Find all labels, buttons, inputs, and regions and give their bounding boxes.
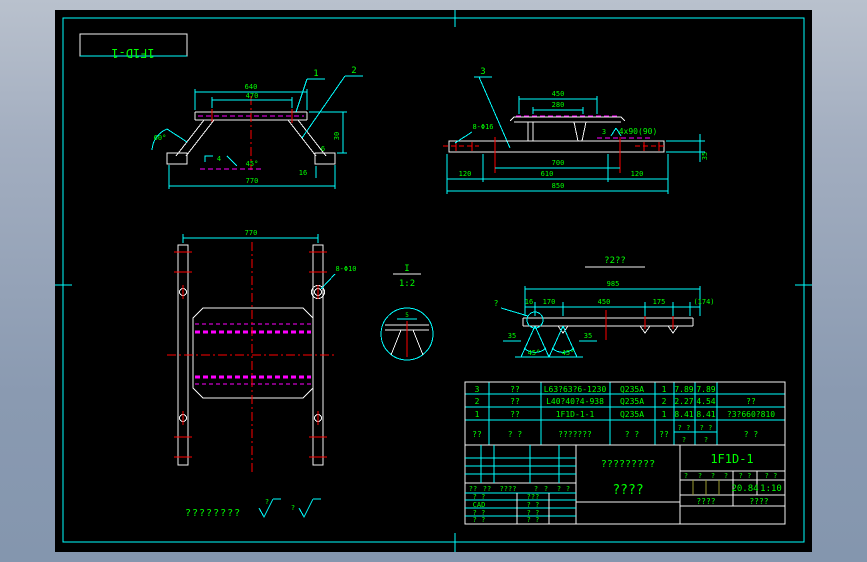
cell-remark: ?? xyxy=(746,397,756,406)
drawing-number-stamp: 1F1D-1 xyxy=(80,34,187,60)
drawing-name-line1: ????????? xyxy=(601,459,655,470)
detail-ref: ? xyxy=(494,299,499,308)
rev-h2: ?? xyxy=(483,485,491,493)
hole-note: 8-Φ10 xyxy=(335,265,356,273)
cell-name: L40?40?4-938 xyxy=(546,397,604,406)
header-unit-sub: ? xyxy=(682,436,686,444)
dim-left: 120 xyxy=(459,170,472,178)
scale-value: 1:10 xyxy=(760,484,782,494)
rev-h5: ? xyxy=(544,485,548,493)
dim-angle-left: 45° xyxy=(528,349,541,357)
table-row: 2 ?? L40?40?4-938 Q235A 2 2.27 4.54 ?? xyxy=(475,397,756,406)
header-unit-weight: ? ? xyxy=(678,424,691,432)
rev-h6: ? xyxy=(557,485,561,493)
header-remark: ? ? xyxy=(744,430,759,439)
sig-row-label: ??? xyxy=(527,493,540,501)
roughness-value: ? xyxy=(291,504,295,512)
cell-remark: ?3?660?810 xyxy=(727,410,775,419)
development-title: ?2?? xyxy=(604,256,626,266)
mark-3: ? xyxy=(711,472,715,480)
cell-unit-weight: 7.89 xyxy=(674,385,693,394)
mark-1: ? xyxy=(684,472,688,480)
dim-total: 985 xyxy=(607,280,620,288)
dim-bottom: 770 xyxy=(246,177,259,185)
dim-mid: 610 xyxy=(541,170,554,178)
detail-dim: 5 xyxy=(405,312,409,319)
header-qty: ?? xyxy=(659,430,669,439)
dim-seg2: 170 xyxy=(543,298,556,306)
dim-total: 850 xyxy=(552,182,565,190)
cell-qty: 1 xyxy=(662,410,667,419)
roughness-symbol: ? xyxy=(259,498,281,517)
sig-row-label: ? ? xyxy=(473,516,486,524)
sig-row-label: ? ? xyxy=(527,501,540,509)
cad-drawing-canvas[interactable]: 1F1D-1 6 xyxy=(55,10,812,552)
header-code: ? ? xyxy=(508,430,523,439)
table-header-row: ?? ? ? ??????? ? ? ?? ? ? ? ? ? ? ? ? xyxy=(472,424,758,444)
dim-inner: 470 xyxy=(246,92,259,100)
cell-total-weight: 8.41 xyxy=(696,410,715,419)
drawing-name-line2: ???? xyxy=(612,483,643,498)
cell-seq: 1 xyxy=(475,410,480,419)
sig-row-label: ? ? xyxy=(527,516,540,524)
mark-2: ? xyxy=(698,472,702,480)
cell-material: Q235A xyxy=(620,397,644,406)
dim-angle-right: 45° xyxy=(562,349,575,357)
note-remark: ???????? xyxy=(185,508,241,519)
dim-seg4: 175 xyxy=(653,298,666,306)
cell-unit-weight: 2.27 xyxy=(674,397,693,406)
weld-flag: 3 xyxy=(602,128,606,136)
hole-note: 8-Φ16 xyxy=(472,123,493,131)
dim-seg1: 16 xyxy=(525,298,533,306)
cell-name: 1F1D-1-1 xyxy=(556,410,595,419)
dim-seg3: 450 xyxy=(598,298,611,306)
cell-material: Q235A xyxy=(620,410,644,419)
mark-4: ? xyxy=(724,472,728,480)
dim-angle: 60° xyxy=(154,134,167,142)
cell-seq: 3 xyxy=(475,385,480,394)
dim-side-left: 35 xyxy=(508,332,516,340)
cad-viewer-window: 1F1D-1 6 xyxy=(0,0,867,562)
weld-size: 4 xyxy=(217,155,221,163)
header-name: ??????? xyxy=(558,430,592,439)
dim-span: 700 xyxy=(552,159,565,167)
cell-seq: 2 xyxy=(475,397,480,406)
stamp-number: 1F1D-1 xyxy=(111,46,154,60)
dim-top: 450 xyxy=(552,90,565,98)
cell-qty: 1 xyxy=(662,385,667,394)
balloon-1: 1 xyxy=(313,69,318,79)
sig-row-label: CAD xyxy=(473,501,486,509)
dim-right: 120 xyxy=(631,170,644,178)
rev-h3: ???? xyxy=(500,485,517,493)
view-bracket: 640 470 770 60° 30 6 16 xyxy=(152,66,363,189)
header-material: ? ? xyxy=(625,430,640,439)
sheet-left: ???? xyxy=(696,497,715,506)
dim-side: 6 xyxy=(321,145,325,153)
roughness-value: ? xyxy=(265,498,269,506)
dim-thickness: 35 xyxy=(701,152,709,160)
general-notes: ???????? ? ? xyxy=(185,498,321,519)
cell-code: ?? xyxy=(510,410,520,419)
drawing-number: 1F1D-1 xyxy=(710,452,753,466)
weight-label: ? ? xyxy=(739,472,752,480)
cell-code: ?? xyxy=(510,397,520,406)
parts-table: 3 ?? L63?63?6-1230 Q235A 1 7.89 7.89 2 ?… xyxy=(465,382,785,445)
view-plan: 770 xyxy=(167,229,357,472)
detail-label: I xyxy=(404,264,409,274)
rev-h4: ? xyxy=(534,485,538,493)
roughness-symbol: ? xyxy=(291,499,321,517)
base-plate xyxy=(449,141,664,152)
view-detail: I 1:2 5 xyxy=(381,264,433,360)
cell-material: Q235A xyxy=(620,385,644,394)
balloon-2: 2 xyxy=(351,66,356,76)
table-row: 3 ?? L63?63?6-1230 Q235A 1 7.89 7.89 xyxy=(475,385,716,394)
scale-label: ? ? xyxy=(765,472,778,480)
dim-width: 770 xyxy=(245,229,258,237)
stage-marks-header: ? ? ? ? xyxy=(684,472,728,480)
dim-top: 640 xyxy=(245,83,258,91)
revision-header-row: ?? ?? ???? ? ? ? ? xyxy=(469,485,570,493)
cell-qty: 2 xyxy=(662,397,667,406)
dim-foot: 16 xyxy=(299,169,307,177)
header-total-sub: ? xyxy=(704,436,708,444)
dim-inner: 280 xyxy=(552,101,565,109)
dim-seg5: (174) xyxy=(693,298,714,306)
weld-note: 4x90(90) xyxy=(619,127,658,136)
cell-unit-weight: 8.41 xyxy=(674,410,693,419)
cell-total-weight: 4.54 xyxy=(696,397,715,406)
balloon-3: 3 xyxy=(480,67,485,77)
rev-h7: ? xyxy=(566,485,570,493)
cell-name: L63?63?6-1230 xyxy=(544,385,607,394)
view-development: ?2?? 985 16 170 450 175 (174) xyxy=(494,256,715,357)
cell-code: ?? xyxy=(510,385,520,394)
table-row: 1 ?? 1F1D-1-1 Q235A 1 8.41 8.41 ?3?660?8… xyxy=(475,410,776,419)
sheet-right: ???? xyxy=(749,497,768,506)
weld-angle: 45° xyxy=(246,160,259,168)
detail-scale: 1:2 xyxy=(399,279,415,289)
rev-h1: ?? xyxy=(469,485,477,493)
header-seq: ?? xyxy=(472,430,482,439)
dim-side-right: 35 xyxy=(584,332,592,340)
dim-height: 30 xyxy=(333,132,341,140)
view-assembly: 3 450 280 xyxy=(443,67,709,194)
sig-row-label: ? ? xyxy=(473,493,486,501)
header-total-weight: ? ? xyxy=(700,424,713,432)
weight-value: 20.84 xyxy=(731,484,758,494)
cell-total-weight: 7.89 xyxy=(696,385,715,394)
